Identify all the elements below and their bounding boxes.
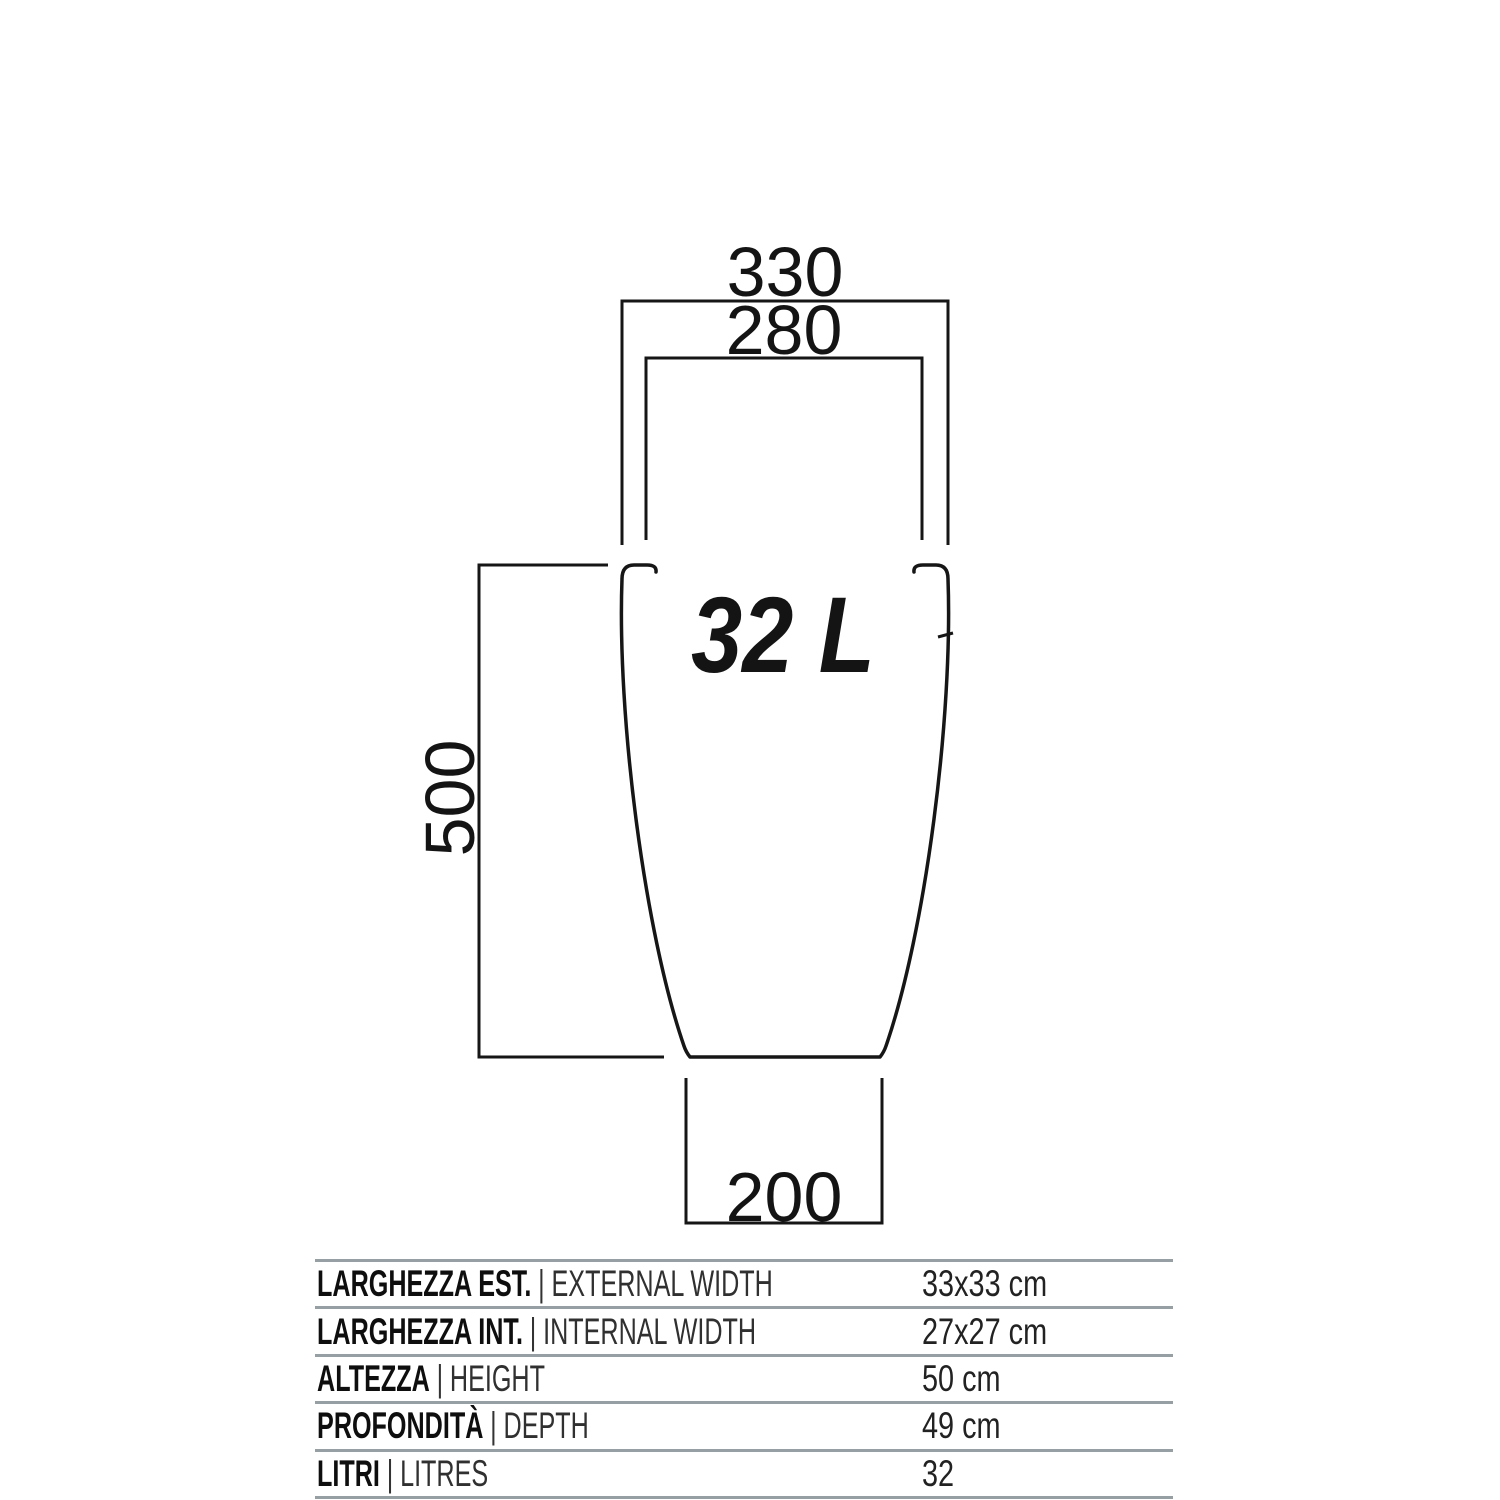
dimension-bracket-internal-width	[646, 358, 922, 540]
spec-label-english: DEPTH	[504, 1405, 589, 1446]
dimension-label-base-width: 200	[726, 1158, 843, 1236]
spec-label-english: LITRES	[400, 1453, 488, 1494]
planter-spec-sheet: 330 280 500 200 32 L LARGHEZZA EST.|EXTE…	[0, 0, 1500, 1500]
spec-label-english: INTERNAL WIDTH	[543, 1311, 756, 1352]
spec-label-italian: LARGHEZZA INT.	[317, 1311, 523, 1352]
dimension-label-height: 500	[411, 740, 489, 857]
spec-value: 32	[922, 1453, 954, 1495]
spec-row-external-width: LARGHEZZA EST.|EXTERNAL WIDTH 33x33 cm	[315, 1259, 1173, 1306]
dimension-label-internal-width: 280	[726, 291, 843, 369]
label-separator: |	[437, 1358, 444, 1399]
spec-label-italian: PROFONDITÀ	[317, 1405, 483, 1446]
spec-row-internal-width: LARGHEZZA INT.|INTERNAL WIDTH 27x27 cm	[315, 1306, 1173, 1353]
vase-seam-tick	[938, 633, 953, 637]
vase-technical-drawing: 330 280 500 200 32 L	[0, 0, 1500, 1250]
spec-label: LITRI|LITRES	[315, 1453, 488, 1495]
spec-label-italian: LARGHEZZA EST.	[317, 1263, 531, 1304]
spec-value: 49 cm	[922, 1405, 1001, 1447]
spec-label: PROFONDITÀ|DEPTH	[315, 1405, 589, 1447]
spec-value: 33x33 cm	[922, 1263, 1047, 1305]
label-separator: |	[490, 1405, 497, 1446]
spec-table: LARGHEZZA EST.|EXTERNAL WIDTH 33x33 cm L…	[315, 1259, 1173, 1499]
spec-label: ALTEZZA|HEIGHT	[315, 1358, 545, 1400]
spec-label: LARGHEZZA INT.|INTERNAL WIDTH	[315, 1311, 756, 1353]
label-separator: |	[538, 1263, 545, 1304]
spec-row-litres: LITRI|LITRES 32	[315, 1449, 1173, 1496]
spec-value: 27x27 cm	[922, 1311, 1047, 1353]
volume-label: 32 L	[691, 575, 875, 696]
label-separator: |	[387, 1453, 394, 1494]
spec-label-italian: LITRI	[317, 1453, 380, 1494]
spec-row-height: ALTEZZA|HEIGHT 50 cm	[315, 1354, 1173, 1401]
spec-value: 50 cm	[922, 1358, 1001, 1400]
spec-label-english: EXTERNAL WIDTH	[552, 1263, 773, 1304]
spec-row-depth: PROFONDITÀ|DEPTH 49 cm	[315, 1401, 1173, 1448]
spec-label: LARGHEZZA EST.|EXTERNAL WIDTH	[315, 1263, 773, 1305]
spec-label-italian: ALTEZZA	[317, 1358, 430, 1399]
spec-label-english: HEIGHT	[450, 1358, 545, 1399]
label-separator: |	[530, 1311, 537, 1352]
